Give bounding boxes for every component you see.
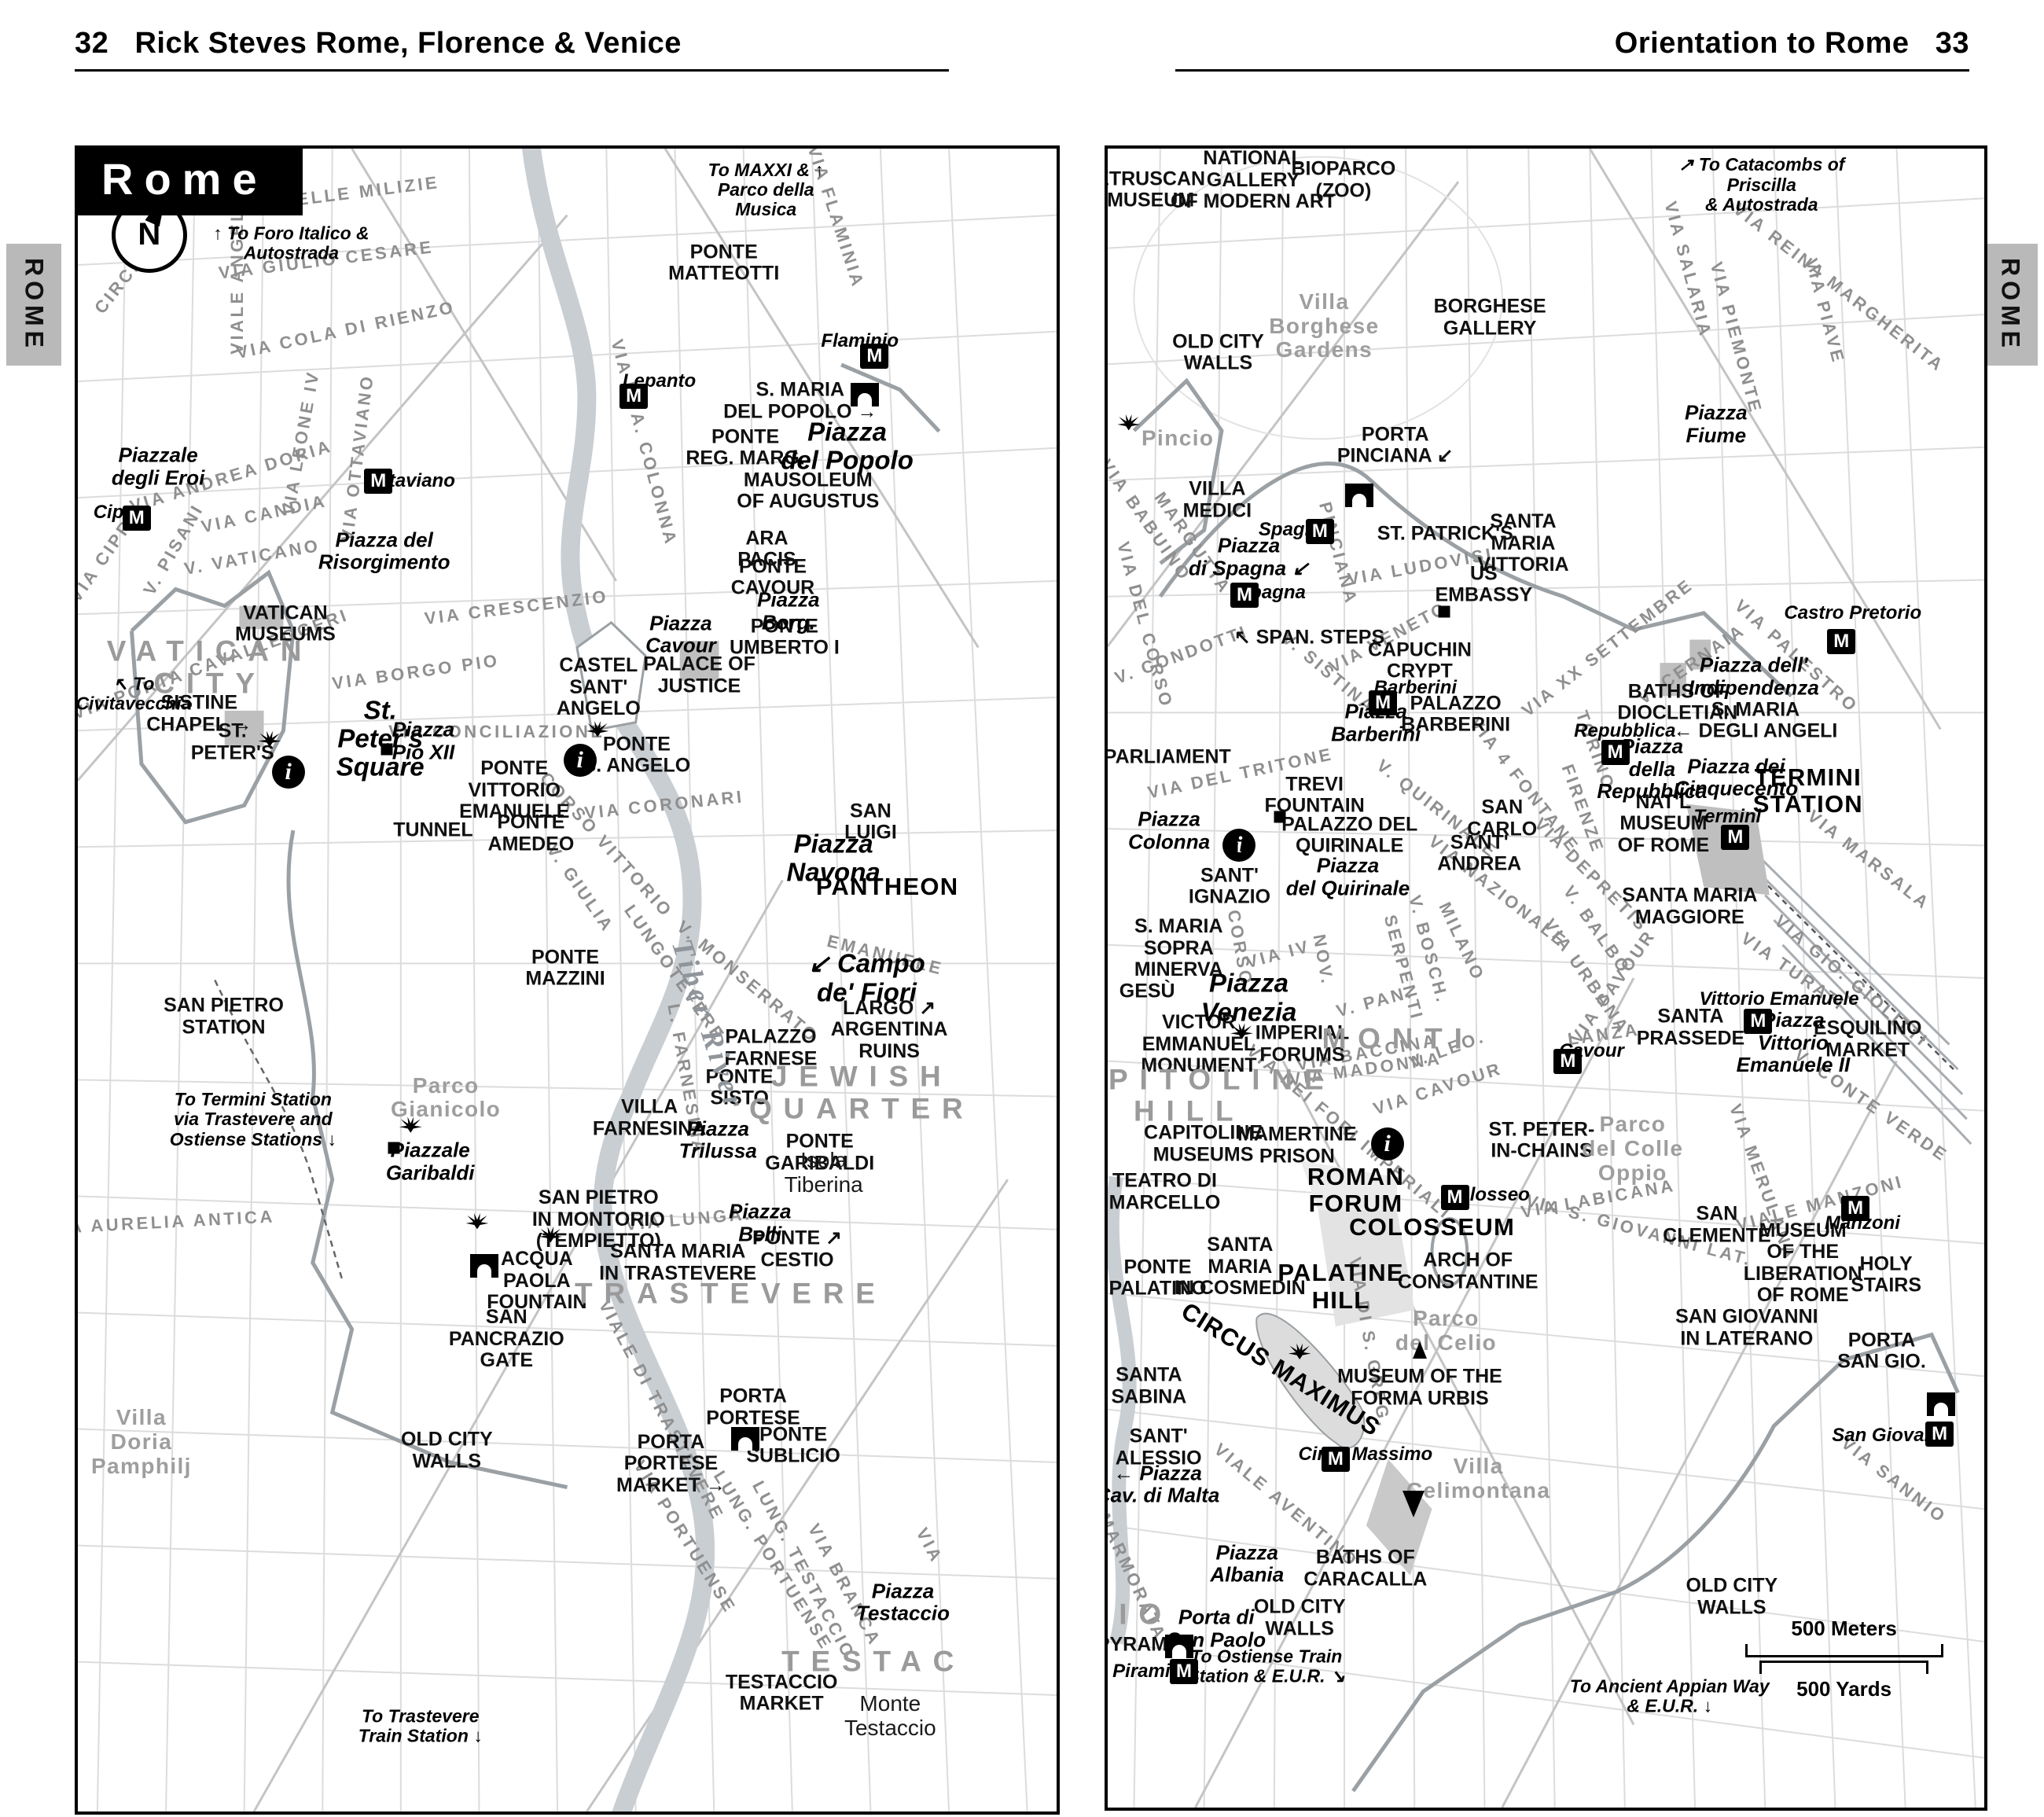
sight-marker-icon bbox=[388, 1142, 400, 1154]
metro-station-icon: M bbox=[860, 344, 888, 369]
metro-station-icon: M bbox=[1841, 1196, 1869, 1221]
map-label: PALACE OF JUSTICE bbox=[643, 654, 755, 697]
map-label: Piazza Trilussa bbox=[679, 1117, 757, 1162]
map-label: TRASTEVERE bbox=[575, 1278, 887, 1311]
left-rome-tab-label: ROME bbox=[20, 258, 49, 352]
metro-station-icon: M bbox=[1721, 825, 1749, 850]
map-label: Piazza Cavour bbox=[645, 612, 716, 657]
map-label: Monte Testaccio bbox=[844, 1693, 936, 1742]
map-label: ↑ To Foro Italico & Autostrada bbox=[213, 223, 369, 263]
sight-marker-icon bbox=[1274, 811, 1285, 823]
map-label: COLOSSEUM bbox=[1349, 1213, 1515, 1240]
map-label: Parco del Colle Oppio bbox=[1582, 1113, 1683, 1185]
map-label: PARLIAMENT bbox=[1105, 747, 1231, 769]
map-label: ACQUA PAOLA FOUNTAIN bbox=[487, 1249, 586, 1314]
metro-station-icon: M bbox=[1925, 1422, 1954, 1447]
city-gate-icon bbox=[470, 1254, 498, 1278]
map-label: OLD CITY WALLS bbox=[401, 1429, 493, 1473]
map-label: Pincio bbox=[1141, 427, 1214, 451]
map-label: PALAZZO DEL QUIRINALE bbox=[1281, 814, 1417, 857]
map-label: CASTEL SANT' ANGELO bbox=[557, 655, 641, 720]
map-label: VILLA MEDICI bbox=[1183, 479, 1252, 522]
map-label: MUSEUM OF THE FORMA URBIS bbox=[1337, 1366, 1502, 1410]
map-label: OLD CITY WALLS bbox=[1172, 331, 1264, 374]
map-label: BORGHESE GALLERY bbox=[1434, 296, 1546, 340]
map-label: MAUSOLEUM OF AUGUSTUS bbox=[737, 469, 879, 513]
map-label: SANTA PRASSEDE bbox=[1637, 1006, 1745, 1050]
map-label: SAN PANCRAZIO GATE bbox=[449, 1307, 564, 1372]
rome-map-west-panel: Rome CIRC. CLODIOVIALE ANGELICOVIALE DEL… bbox=[75, 145, 1060, 1815]
map-label: TESTACCIO MARKET bbox=[726, 1672, 838, 1715]
left-page-header: 32 Rick Steves Rome, Florence & Venice bbox=[75, 27, 682, 61]
map-label: Piazza del Quirinale bbox=[1286, 855, 1410, 899]
map-label: SANTA SABINA bbox=[1111, 1365, 1186, 1408]
map-label: CIO bbox=[1105, 1599, 1173, 1631]
map-label: Piazza dell' Indipendenza bbox=[1689, 653, 1819, 698]
city-gate-icon bbox=[1345, 484, 1373, 507]
map-label: SAN PIETRO STATION bbox=[164, 995, 284, 1039]
left-page-title: Rick Steves Rome, Florence & Venice bbox=[134, 27, 681, 60]
map-label: ROMAN FORUM bbox=[1307, 1164, 1404, 1217]
map-label: Piazza dei Cinquecento bbox=[1675, 755, 1798, 800]
map-label: Piazza Belli bbox=[729, 1201, 792, 1245]
map-scale: 500 Meters 500 Yards bbox=[1739, 1617, 1950, 1701]
map-label: ST. PETER- IN-CHAINS bbox=[1489, 1119, 1595, 1162]
map-label: TESTAC bbox=[781, 1646, 965, 1678]
map-label: LARGO ↗ ARGENTINA RUINS bbox=[831, 998, 948, 1063]
map-label: Piazza Albania bbox=[1210, 1541, 1284, 1586]
metro-station-icon: M bbox=[1322, 1447, 1350, 1472]
arrow-up-icon bbox=[1413, 1341, 1427, 1359]
map-label: Parco Gianicolo bbox=[391, 1074, 501, 1123]
map-label: PALATINE HILL bbox=[1277, 1260, 1403, 1313]
map-label: HOLY STAIRS bbox=[1851, 1253, 1921, 1297]
metro-station-icon: M bbox=[1369, 690, 1397, 715]
map-label: SANTA MARIA VITTORIA bbox=[1477, 511, 1568, 576]
metro-station-icon: M bbox=[364, 469, 392, 494]
sight-marker-icon bbox=[1226, 843, 1238, 855]
map-label: PONTE MATTEOTTI bbox=[668, 241, 779, 285]
map-label: Piazza Pio XII bbox=[392, 718, 455, 763]
map-label: OLD CITY WALLS bbox=[1254, 1597, 1346, 1640]
tourist-info-icon: i bbox=[1371, 1127, 1404, 1160]
map-label: ↙ Campo de' Fiori bbox=[808, 950, 925, 1007]
map-label: JEWISH QUARTER bbox=[749, 1061, 975, 1125]
sight-marker-icon bbox=[1439, 605, 1450, 617]
right-rome-tab: ROME bbox=[1983, 244, 2038, 366]
scale-yards-label: 500 Yards bbox=[1739, 1677, 1950, 1701]
metro-station-icon: M bbox=[1441, 1185, 1469, 1210]
map-label: SANT' ANDREA bbox=[1437, 832, 1521, 875]
map-label: SANTA MARIA MAGGIORE bbox=[1622, 885, 1757, 929]
map-label: ST. PETER'S bbox=[191, 721, 274, 764]
map-label: Villa Doria Pamphilj bbox=[91, 1406, 192, 1478]
city-gate-icon bbox=[731, 1427, 759, 1451]
map-label: Piazza Fiume bbox=[1685, 402, 1748, 447]
metro-station-icon: M bbox=[1170, 1659, 1198, 1684]
map-label: CAPITOLINE HILL bbox=[1105, 1064, 1335, 1127]
metro-station-icon: M bbox=[619, 384, 648, 409]
city-gate-icon bbox=[1927, 1392, 1955, 1416]
guidebook-spread: { "page": { "left_header": {"page_number… bbox=[0, 0, 2044, 1817]
rome-map-east-panel: 500 Meters 500 Yards VIA SALARIAVIA REIN… bbox=[1105, 145, 1987, 1811]
map-label: SAN GIOVANNI IN LATERANO bbox=[1675, 1307, 1818, 1350]
map-label: Piazza Venezia bbox=[1201, 969, 1297, 1027]
map-label: ↖ SPAN. STEPS bbox=[1234, 627, 1384, 649]
map-label: Piazza del Risorgimento bbox=[318, 528, 450, 573]
map-label: ↖ To Civitavecchia bbox=[75, 674, 191, 714]
left-page-number: 32 bbox=[75, 27, 108, 60]
scale-yards-bar bbox=[1759, 1661, 1928, 1674]
map-label: ← Piazza Cav. di Malta bbox=[1105, 1462, 1219, 1506]
arrow-down-icon bbox=[1402, 1491, 1425, 1517]
metro-station-icon: M bbox=[1601, 740, 1630, 765]
map-label: PONTE MAZZINI bbox=[525, 947, 605, 990]
sight-marker-icon bbox=[381, 743, 393, 755]
map-label: Vittorio Emanuele bbox=[1700, 989, 1859, 1010]
map-label: SANT' IGNAZIO bbox=[1189, 865, 1270, 908]
metro-station-icon: M bbox=[1306, 519, 1334, 544]
map-label: Piazza Borg. bbox=[757, 588, 820, 633]
left-header-rule bbox=[75, 69, 949, 72]
scale-meters-bar bbox=[1745, 1644, 1943, 1657]
map-label: Castro Pretorio bbox=[1784, 603, 1921, 623]
right-page-title: Orientation to Rome bbox=[1615, 27, 1910, 60]
map-label: OLD CITY WALLS bbox=[1686, 1576, 1778, 1619]
map-label: MONTI bbox=[1322, 1024, 1473, 1056]
right-page-number: 33 bbox=[1936, 27, 1969, 60]
right-rome-tab-label: ROME bbox=[1996, 258, 2025, 352]
map-label: To MAXXI & ↑ Parco della Musica bbox=[708, 160, 824, 220]
map-label: Piazza Testaccio bbox=[856, 1580, 950, 1624]
tourist-info-icon: i bbox=[272, 756, 305, 789]
map-label: BATHS OF CARACALLA bbox=[1303, 1547, 1427, 1591]
map-label: To Trastevere Train Station ↓ bbox=[358, 1707, 483, 1747]
map-label: Piazzale degli Eroi bbox=[112, 443, 204, 488]
metro-station-icon: M bbox=[1827, 629, 1855, 654]
map-label: PORTA PORTESE MARKET → bbox=[616, 1432, 726, 1497]
map-label: GESÙ bbox=[1119, 980, 1175, 1002]
city-gate-icon bbox=[851, 383, 879, 406]
map-label: Piazza del Popolo bbox=[781, 417, 914, 475]
metro-station-icon: M bbox=[123, 506, 151, 531]
metro-station-icon: M bbox=[1553, 1049, 1582, 1074]
map-label: Piazza di Spagna ↙ bbox=[1189, 534, 1309, 579]
map-label: ↗ To Catacombs of Priscilla & Autostrada bbox=[1650, 155, 1873, 215]
map-title-box: Rome bbox=[75, 145, 303, 215]
map-label: TEATRO DI MARCELLO bbox=[1109, 1171, 1221, 1214]
tourist-info-icon: i bbox=[564, 744, 597, 777]
map-label: Villa Borghese Gardens bbox=[1269, 290, 1379, 362]
map-label: Piazza Navona bbox=[787, 830, 880, 888]
metro-station-icon: M bbox=[1744, 1009, 1772, 1034]
map-label: Isola Tiberina bbox=[785, 1149, 863, 1197]
scale-meters-label: 500 Meters bbox=[1739, 1617, 1950, 1641]
map-label: Parco del Celio bbox=[1395, 1308, 1497, 1356]
map-label: PONTE S. ANGELO bbox=[583, 734, 691, 777]
map-label: To Ostiense Train Station & E.U.R. ↘ bbox=[1187, 1646, 1345, 1686]
map-label: Villa Celimontana bbox=[1406, 1455, 1550, 1503]
left-rome-tab: ROME bbox=[6, 244, 61, 366]
map-label: PORTA PINCIANA ↙ bbox=[1337, 424, 1454, 467]
map-label: Repubblica bbox=[1574, 720, 1675, 741]
map-label: To Termini Station via Trastevere and Os… bbox=[170, 1090, 336, 1149]
metro-station-icon: M bbox=[1230, 583, 1259, 608]
city-gate-icon bbox=[1165, 1635, 1193, 1658]
map-label: BIOPARCO (ZOO) bbox=[1291, 159, 1395, 202]
map-label: ARCH OF CONSTANTINE bbox=[1398, 1250, 1539, 1293]
map-label: Piazza Colonna bbox=[1128, 808, 1210, 853]
map-label: PONTE AMEDEO bbox=[488, 812, 575, 855]
right-header-rule bbox=[1175, 69, 1969, 72]
map-label: MAMERTINE PRISON bbox=[1237, 1124, 1356, 1168]
right-page-header: Orientation to Rome 33 bbox=[1615, 27, 1969, 61]
map-label: PORTA SAN GIO. bbox=[1837, 1330, 1926, 1373]
map-label: PONTE SUBLICIO bbox=[746, 1424, 840, 1467]
